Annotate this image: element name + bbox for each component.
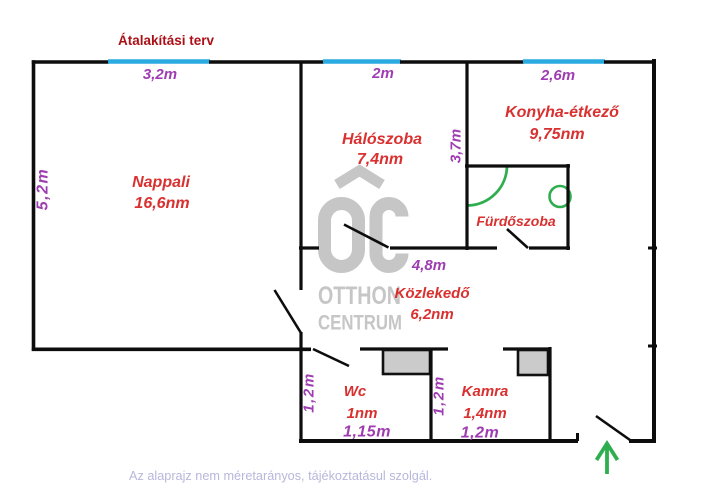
svg-text:CENTRUM: CENTRUM — [318, 311, 402, 335]
svg-text:16,6nm: 16,6nm — [134, 195, 189, 212]
svg-text:4,8m: 4,8m — [411, 257, 446, 274]
svg-text:1,15m: 1,15m — [343, 424, 391, 441]
svg-text:Hálószoba: Hálószoba — [342, 131, 422, 148]
svg-text:Konyha-étkező: Konyha-étkező — [505, 104, 620, 121]
svg-text:Átalakítási terv: Átalakítási terv — [118, 33, 215, 48]
svg-text:1nm: 1nm — [347, 405, 378, 422]
svg-text:OTTHON: OTTHON — [318, 282, 401, 310]
svg-text:3,7m: 3,7m — [448, 129, 465, 163]
svg-text:1,2m: 1,2m — [461, 425, 499, 442]
svg-text:7,4nm: 7,4nm — [357, 151, 403, 168]
svg-text:Kamra: Kamra — [462, 383, 509, 400]
svg-text:Az alaprajz nem méretarányos,: Az alaprajz nem méretarányos, tájékoztat… — [129, 469, 432, 483]
svg-text:1,2m: 1,2m — [301, 372, 318, 413]
svg-text:Nappali: Nappali — [132, 174, 190, 191]
svg-text:Fürdőszoba: Fürdőszoba — [476, 213, 556, 229]
svg-text:1,2m: 1,2m — [431, 375, 448, 416]
svg-text:Közlekedő: Közlekedő — [394, 285, 470, 302]
svg-text:6,2nm: 6,2nm — [410, 306, 453, 323]
svg-text:Wc: Wc — [344, 383, 367, 400]
svg-text:2m: 2m — [371, 65, 394, 82]
svg-text:9,75nm: 9,75nm — [529, 126, 584, 143]
svg-text:5,2m: 5,2m — [35, 168, 52, 210]
svg-text:3,2m: 3,2m — [143, 66, 177, 83]
svg-text:1,4nm: 1,4nm — [463, 405, 506, 422]
svg-text:2,6m: 2,6m — [540, 67, 575, 84]
